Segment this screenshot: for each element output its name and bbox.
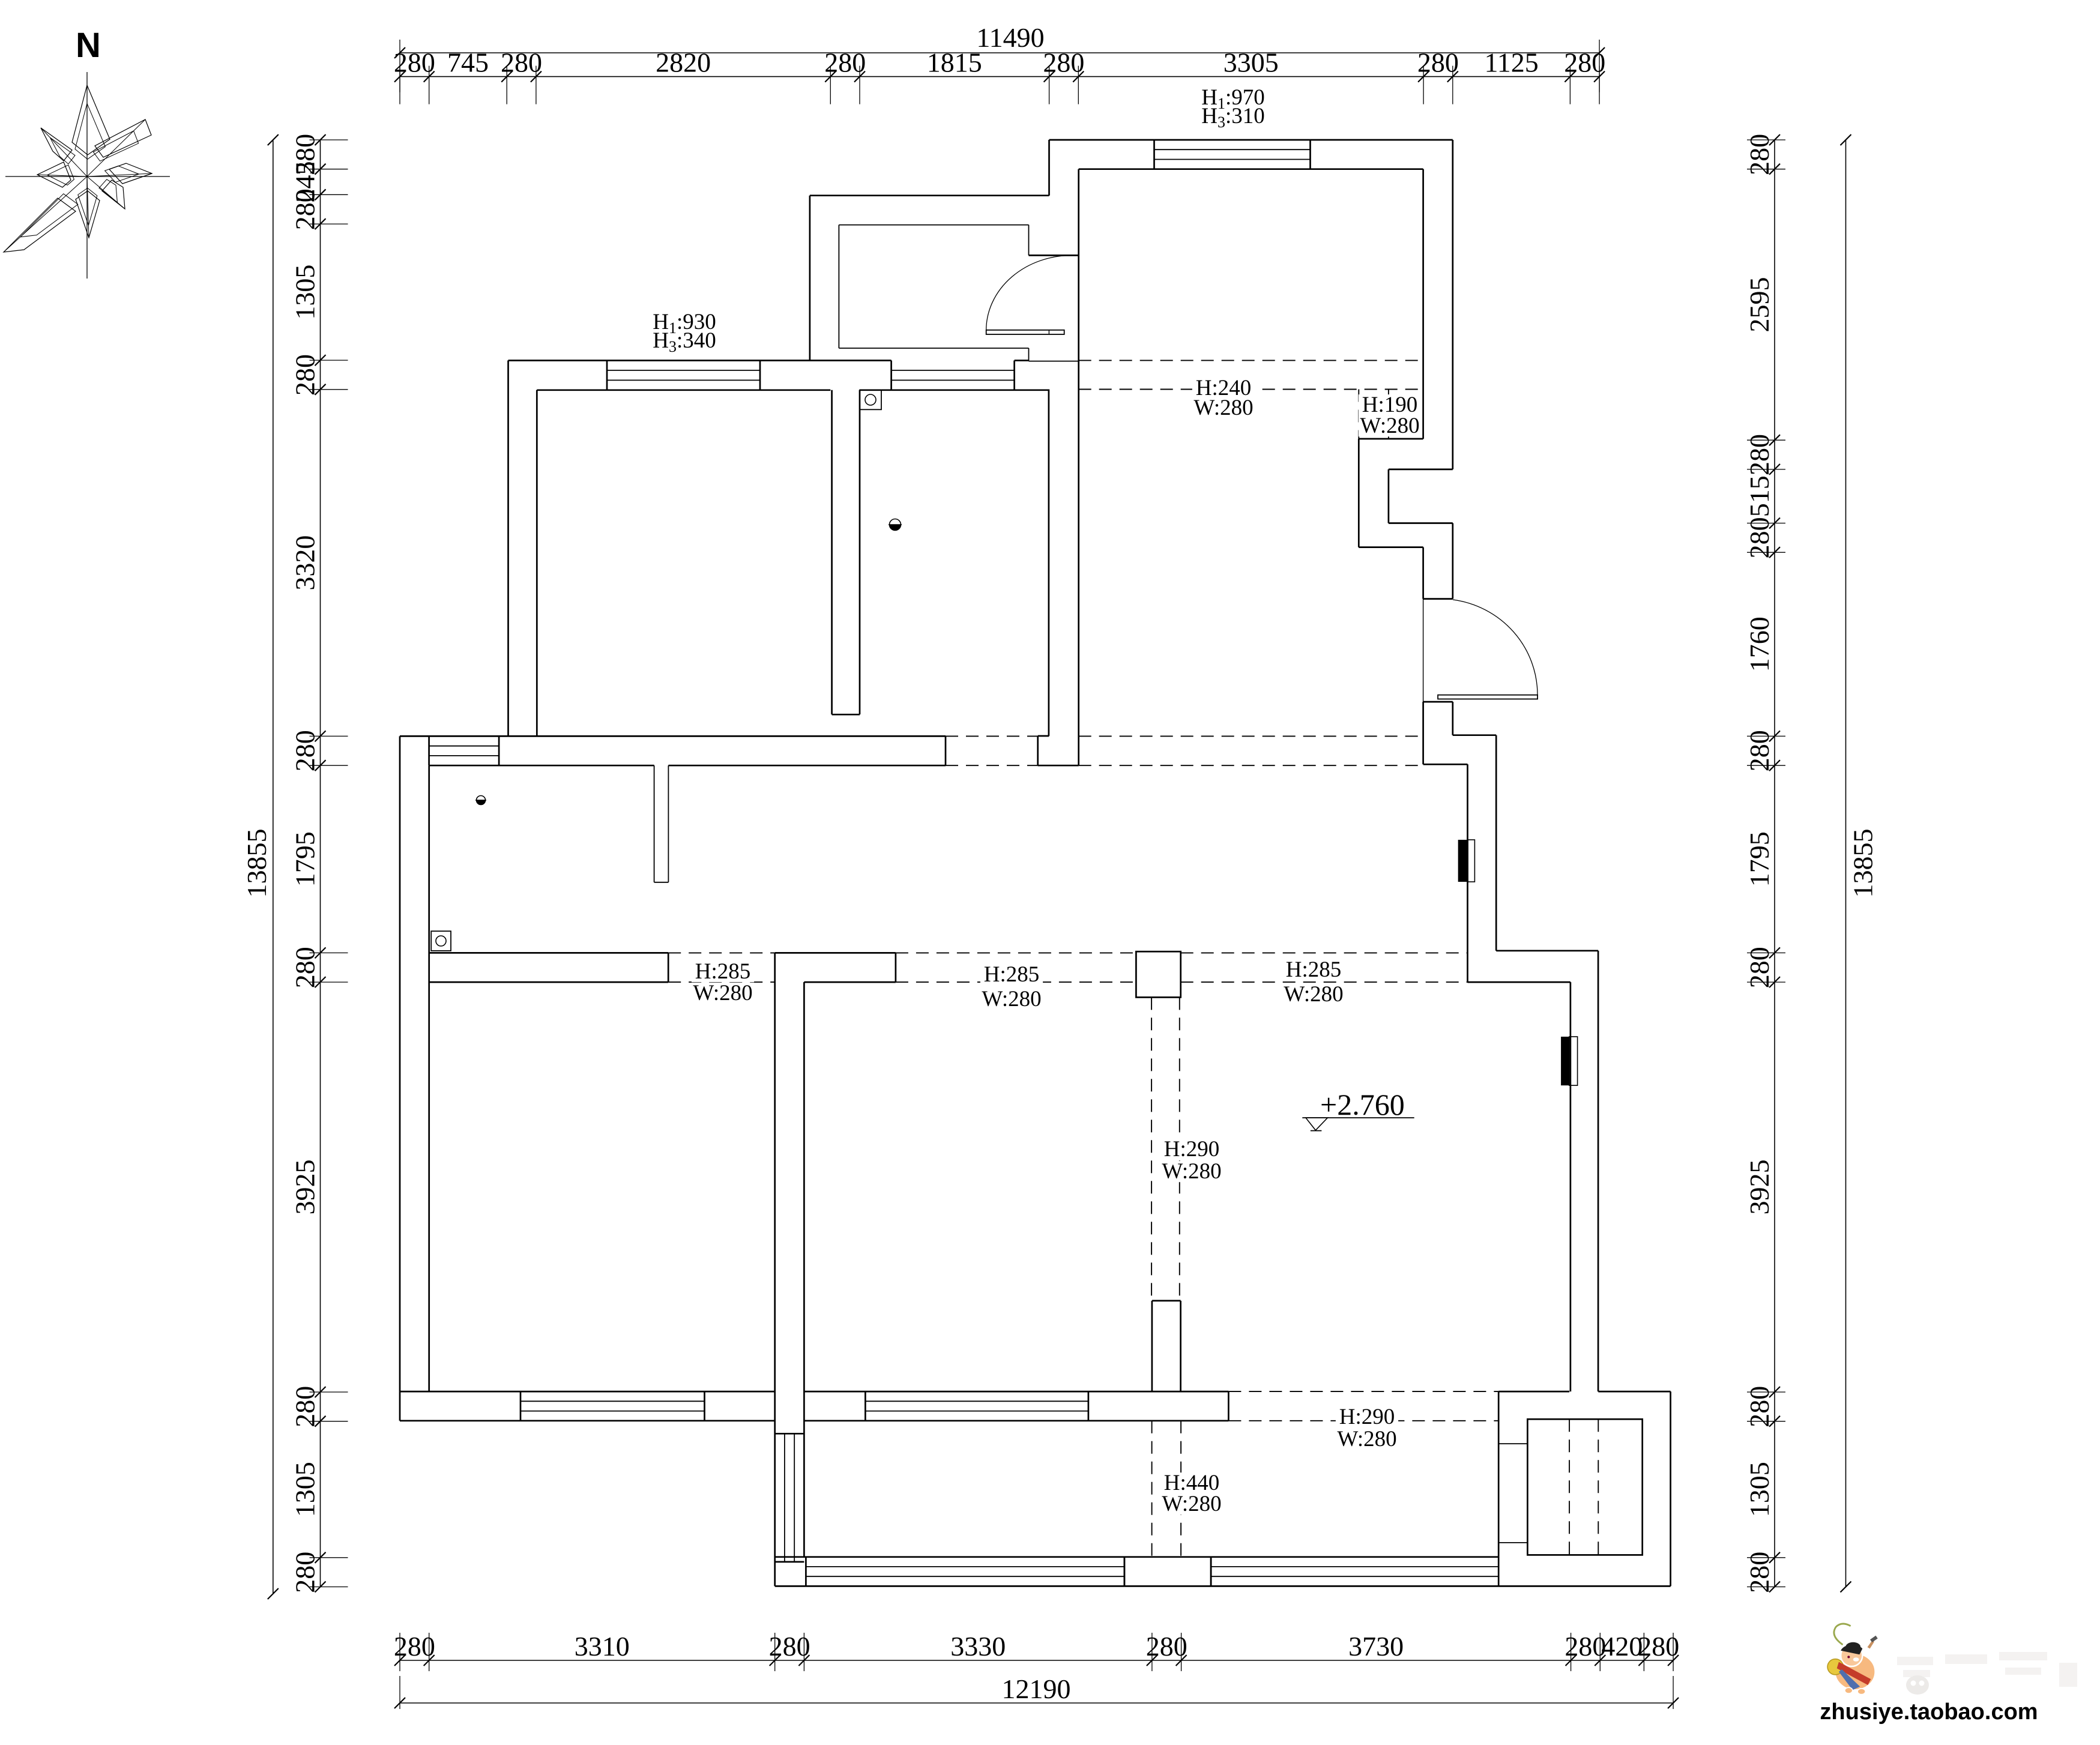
svg-text:280: 280	[394, 1631, 435, 1662]
svg-text:H:285: H:285	[984, 962, 1040, 987]
svg-text:280: 280	[1744, 434, 1775, 475]
svg-text:1815: 1815	[927, 47, 982, 78]
svg-text:3320: 3320	[290, 535, 321, 591]
svg-text:W:280: W:280	[1162, 1492, 1221, 1516]
svg-text:W:280: W:280	[693, 981, 752, 1005]
svg-text:2595: 2595	[1744, 277, 1775, 333]
svg-text:280: 280	[1744, 517, 1775, 558]
svg-text:280: 280	[1744, 1386, 1775, 1427]
svg-text:3730: 3730	[1348, 1631, 1404, 1662]
svg-text:745: 745	[447, 47, 489, 78]
svg-text:515: 515	[1744, 475, 1775, 517]
svg-text:280: 280	[824, 47, 866, 78]
svg-text:H3:310: H3:310	[1201, 104, 1265, 131]
svg-text:280: 280	[1417, 47, 1459, 78]
svg-text:W:280: W:280	[982, 987, 1041, 1011]
svg-text:H3:340: H3:340	[653, 328, 716, 355]
svg-text:1795: 1795	[290, 831, 321, 887]
svg-text:280: 280	[501, 47, 542, 78]
svg-text:3310: 3310	[575, 1631, 630, 1662]
svg-text:13855: 13855	[1848, 829, 1878, 898]
svg-text:280: 280	[1564, 1631, 1606, 1662]
svg-text:280: 280	[1744, 730, 1775, 771]
svg-text:12190: 12190	[1002, 1674, 1071, 1704]
svg-text:3330: 3330	[950, 1631, 1006, 1662]
svg-text:W:280: W:280	[1193, 396, 1253, 420]
svg-text:1795: 1795	[1744, 831, 1775, 887]
svg-text:W:280: W:280	[1162, 1159, 1221, 1184]
svg-text:280: 280	[1146, 1631, 1187, 1662]
svg-text:H:290: H:290	[1164, 1137, 1220, 1162]
svg-text:W:280: W:280	[1337, 1427, 1396, 1451]
svg-text:280: 280	[1744, 1552, 1775, 1593]
svg-text:1760: 1760	[1744, 616, 1775, 672]
svg-text:N: N	[76, 26, 101, 65]
svg-text:2820: 2820	[656, 47, 711, 78]
svg-text:1305: 1305	[290, 1462, 321, 1517]
svg-text:H:290: H:290	[1339, 1405, 1395, 1429]
svg-text:zhusiye.taobao.com: zhusiye.taobao.com	[1820, 1699, 2038, 1725]
svg-text:280: 280	[290, 1386, 321, 1427]
svg-text:+2.760: +2.760	[1320, 1088, 1405, 1121]
svg-text:1305: 1305	[1744, 1462, 1775, 1517]
svg-text:280: 280	[290, 1552, 321, 1593]
svg-text:280: 280	[1744, 134, 1775, 175]
svg-text:W:280: W:280	[1360, 414, 1419, 438]
svg-text:280: 280	[769, 1631, 810, 1662]
svg-text:280: 280	[290, 354, 321, 396]
svg-text:420: 420	[1601, 1631, 1643, 1662]
svg-text:H:285: H:285	[695, 959, 751, 984]
svg-text:H:285: H:285	[1286, 957, 1342, 982]
svg-text:280: 280	[1744, 947, 1775, 988]
svg-text:11490: 11490	[976, 22, 1044, 53]
svg-text:1305: 1305	[290, 265, 321, 320]
svg-text:1125: 1125	[1484, 47, 1538, 78]
svg-text:3925: 3925	[1744, 1160, 1775, 1215]
svg-text:3925: 3925	[290, 1160, 321, 1215]
svg-text:280: 280	[1638, 1631, 1679, 1662]
svg-text:280: 280	[290, 730, 321, 771]
svg-text:13855: 13855	[241, 829, 272, 898]
svg-text:W:280: W:280	[1284, 982, 1343, 1007]
svg-text:280: 280	[290, 188, 321, 230]
svg-text:3305: 3305	[1223, 47, 1279, 78]
svg-text:280: 280	[290, 947, 321, 988]
svg-text:280: 280	[1043, 47, 1084, 78]
